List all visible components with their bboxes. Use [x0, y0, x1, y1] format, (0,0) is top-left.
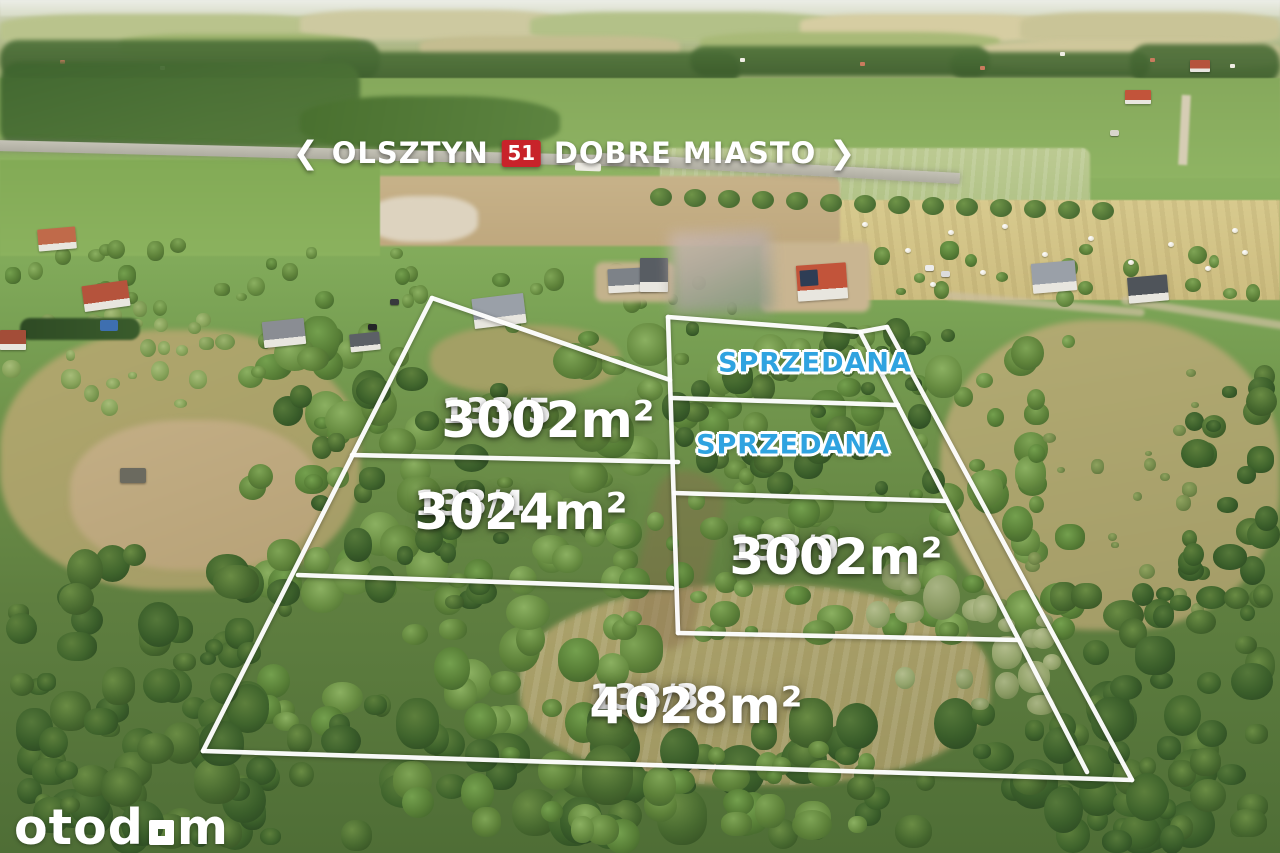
plot-boundary-line — [432, 298, 670, 380]
plot-boundary-line — [668, 317, 678, 633]
square-house-icon — [149, 820, 174, 845]
route-number-badge: 51 — [502, 140, 541, 167]
logo-text-prefix: otod — [14, 799, 144, 853]
plot-boundary-line — [668, 317, 860, 332]
plot-label: 133/9 3002m² — [729, 531, 942, 583]
sold-badge: SPRZEDANA — [718, 348, 912, 379]
plot-area: 3002m² — [729, 531, 942, 583]
plot-boundary-line — [674, 493, 946, 501]
logo-text-suffix: m — [177, 799, 229, 853]
chevron-right-icon: ❯ — [829, 135, 855, 171]
plot-boundary-line — [203, 751, 1132, 780]
plot-boundary-line — [860, 327, 887, 332]
plot-boundary-line — [672, 398, 898, 405]
sign-destination-left: OLSZTYN — [332, 136, 489, 170]
plot-area: 4028m² — [589, 680, 802, 732]
plot-area: 3002m² — [441, 394, 654, 446]
route-number: 51 — [507, 141, 535, 165]
plot-boundary-line — [298, 575, 672, 588]
plot-label: 133/3 4028m² — [589, 680, 802, 732]
aerial-photo-listing: 133/5 3002m² 133/4 3024m² 133/9 3002m² 1… — [0, 0, 1280, 853]
plot-boundary-line — [203, 298, 432, 751]
plot-boundary-line — [352, 455, 678, 462]
plot-boundary-line — [678, 633, 1019, 640]
plot-label: 133/5 3002m² — [441, 394, 654, 446]
otodom-logo: otod m — [14, 799, 229, 853]
sign-destination-right: DOBRE MIASTO — [554, 136, 816, 170]
plot-area: 3024m² — [414, 486, 627, 538]
chevron-left-icon: ❮ — [293, 135, 319, 171]
sold-badge: SPRZEDANA — [696, 430, 890, 461]
plot-label: 133/4 3024m² — [414, 486, 627, 538]
road-sign: ❮ OLSZTYN 51 DOBRE MIASTO ❯ — [293, 135, 856, 171]
